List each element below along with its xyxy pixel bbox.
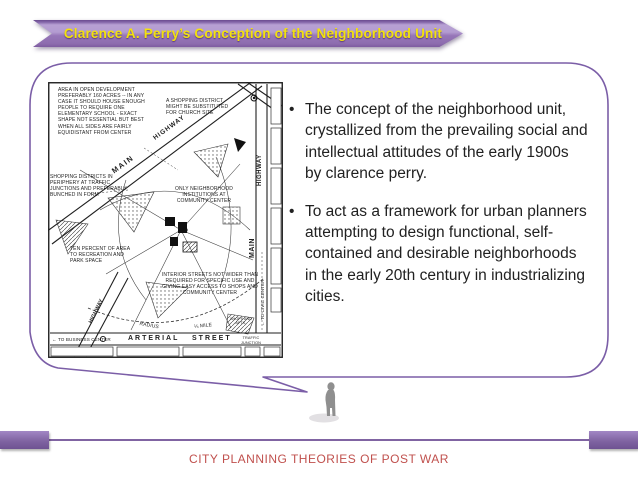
bullet-text: The concept of the neighborhood unit, cr… <box>305 99 589 185</box>
title-ribbon-shape: Clarence A. Perry’s Conception of the Ne… <box>33 20 463 47</box>
footer-divider-line <box>0 439 638 441</box>
person-silhouette <box>325 382 335 416</box>
map-label-interior-streets: INTERIOR STREETS NOT WIDER THAN REQUIRED… <box>160 272 260 296</box>
person-figure <box>306 380 354 424</box>
footer-bar-left <box>0 431 49 449</box>
page-title: Clarence A. Perry’s Conception of the Ne… <box>54 26 442 41</box>
map-label-highway-right: HIGHWAY <box>257 154 264 186</box>
map-label-to-civic-center: ← TO CIVIC CENTER <box>260 279 265 326</box>
bullet-item: • The concept of the neighborhood unit, … <box>289 99 589 185</box>
map-label-shopping-substitute: A SHOPPING DISTRICT MIGHT BE SUBSTITUTED… <box>166 98 240 116</box>
map-label-shopping-districts: SHOPPING DISTRICTS IN PERIPHERY AT TRAFF… <box>50 174 130 198</box>
bullet-text: To act as a framework for urban planners… <box>305 201 589 308</box>
bullet-icon: • <box>289 99 305 185</box>
map-label-area-note: AREA IN OPEN DEVELOPMENT PREFERABLY 160 … <box>58 87 154 136</box>
footer-title: CITY PLANNING THEORIES OF POST WAR <box>0 452 638 466</box>
title-ribbon: Clarence A. Perry’s Conception of the Ne… <box>33 20 463 47</box>
map-label-to-business-center: ← TO BUSINESS CENTER <box>52 337 111 343</box>
bullet-icon: • <box>289 201 305 308</box>
map-label-shops-apts: SHOPS AND APTS. <box>229 317 253 326</box>
map-label-arterial: ARTERIAL <box>128 335 179 344</box>
slide-root: Clarence A. Perry’s Conception of the Ne… <box>0 0 638 479</box>
bullet-item: • To act as a framework for urban planne… <box>289 201 589 308</box>
map-label-main-right: MAIN <box>249 238 258 258</box>
map-label-only-institutions: ONLY NEIGHBORHOOD INSTITUTIONS AT COMMUN… <box>168 186 240 204</box>
map-label-ten-percent: TEN PERCENT OF AREA TO RECREATION AND PA… <box>70 246 132 264</box>
neighborhood-unit-diagram: AREA IN OPEN DEVELOPMENT PREFERABLY 160 … <box>48 82 283 358</box>
footer-bar-right <box>589 431 638 449</box>
bullet-list: • The concept of the neighborhood unit, … <box>289 99 589 323</box>
map-label-street: STREET <box>192 335 232 344</box>
map-label-traffic-junction: TRAFFIC JUNCTION <box>238 336 264 345</box>
